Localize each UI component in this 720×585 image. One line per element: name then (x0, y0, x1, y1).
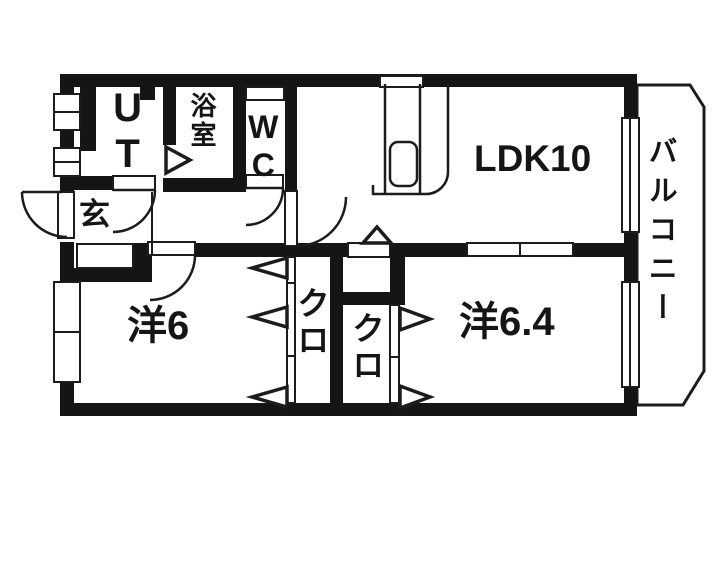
room-label-closet-mid: クロ (348, 311, 382, 385)
wall-west6-north (74, 268, 152, 282)
room-label-genkan: 玄 (79, 199, 110, 231)
door-arc-ut (113, 190, 155, 232)
wall-ut-south (60, 176, 113, 190)
door-west6 (148, 242, 195, 255)
kitchen-counter (373, 84, 448, 194)
wall-right-1 (624, 74, 637, 118)
shoe-cabinet (77, 244, 133, 268)
closet-mid-marker-1 (400, 308, 430, 330)
room-label-balcony: バルコニー (645, 136, 675, 331)
door-ldk (285, 191, 297, 246)
wall-wc-ldk (285, 87, 297, 198)
kitchen-sink (390, 142, 417, 186)
closet-mid-door (390, 305, 399, 403)
door-ut (113, 176, 155, 190)
closet-left-marker-1 (252, 258, 287, 278)
room-label-bath: 浴室 (188, 92, 215, 150)
wall-ldk-south-3 (573, 243, 637, 257)
door-arc-ldk (297, 197, 346, 246)
vent-wc (246, 87, 284, 100)
wall-right-3 (624, 387, 637, 416)
window-kitchen (380, 76, 423, 87)
wall-closet-divider (330, 243, 343, 416)
wall-bottom (60, 403, 637, 416)
door-arc-west6 (150, 255, 195, 300)
wall-ut-west (80, 87, 96, 151)
wall-ut-bath-divider (163, 87, 176, 145)
closet-left-marker-2 (252, 307, 287, 327)
room-label-wc: WC (246, 109, 279, 185)
wall-bath-south (163, 178, 233, 192)
stub-closet-marker (363, 227, 391, 243)
bath-door-marker (166, 147, 190, 173)
door-entrance (58, 192, 74, 238)
door-arc-wc (246, 188, 283, 225)
room-label-western64: 洋6.4 (459, 302, 555, 344)
door-stub-closet (348, 243, 390, 257)
room-label-ut: UT (106, 86, 148, 178)
room-label-closet-left: クロ (293, 286, 327, 360)
wall-closetmid-east (390, 243, 405, 305)
wall-bath-wc-divider (233, 87, 246, 192)
room-label-ldk: LDK10 (474, 140, 591, 178)
room-label-western6: 洋6 (127, 306, 189, 348)
floorplan: UT 浴室 WC 玄 LDK10 洋6 クロ クロ 洋6.4 バルコニー (0, 0, 720, 585)
